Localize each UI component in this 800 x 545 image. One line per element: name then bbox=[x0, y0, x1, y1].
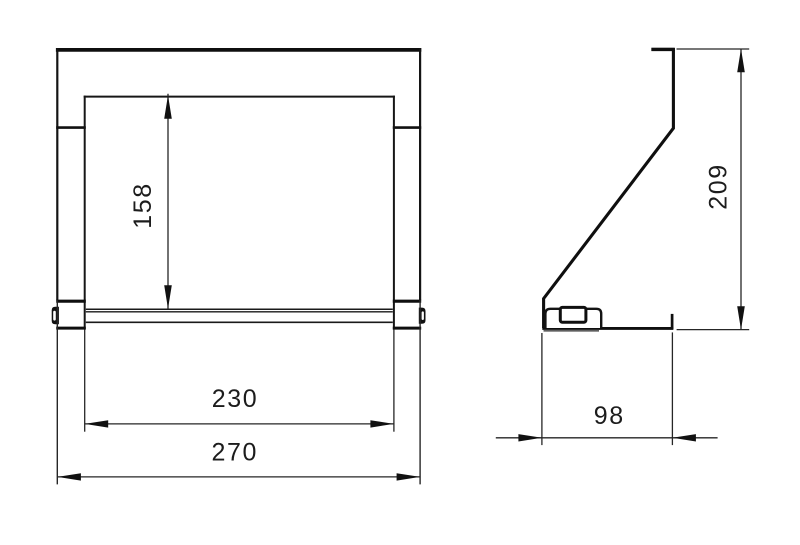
svg-text:209: 209 bbox=[704, 163, 732, 210]
svg-text:230: 230 bbox=[212, 385, 259, 413]
svg-text:98: 98 bbox=[594, 402, 625, 430]
svg-text:158: 158 bbox=[129, 182, 157, 229]
svg-text:270: 270 bbox=[211, 439, 258, 467]
